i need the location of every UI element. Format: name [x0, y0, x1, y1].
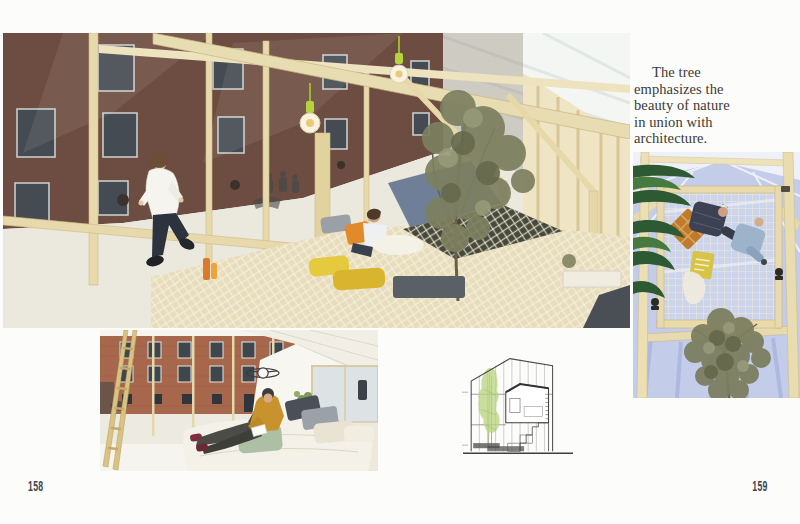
photo-pavilion-interior: [3, 33, 630, 328]
page-number-right: 159: [753, 478, 768, 494]
pull-quote-line: architecture.: [634, 130, 776, 147]
section-drawing-illustration: [461, 353, 575, 463]
pull-quote: The tree emphasizes the beauty of nature…: [634, 64, 776, 147]
bedroom-illustration: [100, 330, 378, 471]
drawing-tree: [478, 368, 499, 448]
photo-bedroom: [100, 330, 378, 471]
pull-quote-line: in union with: [634, 114, 776, 131]
page-number-left: 158: [28, 478, 43, 494]
pull-quote-line: beauty of nature: [634, 97, 776, 114]
section-drawing: [461, 353, 575, 463]
looking-up-illustration: [633, 152, 800, 398]
pull-quote-line: The tree: [634, 64, 776, 81]
dimension-ticks: [462, 392, 468, 445]
pavilion-illustration: [3, 33, 630, 328]
pull-quote-line: emphasizes the: [634, 81, 776, 98]
net-loft: [657, 186, 782, 328]
interior-room: [506, 384, 549, 423]
photo-looking-up: [633, 152, 800, 398]
furniture-marks: [473, 443, 524, 451]
towel: [358, 380, 367, 400]
